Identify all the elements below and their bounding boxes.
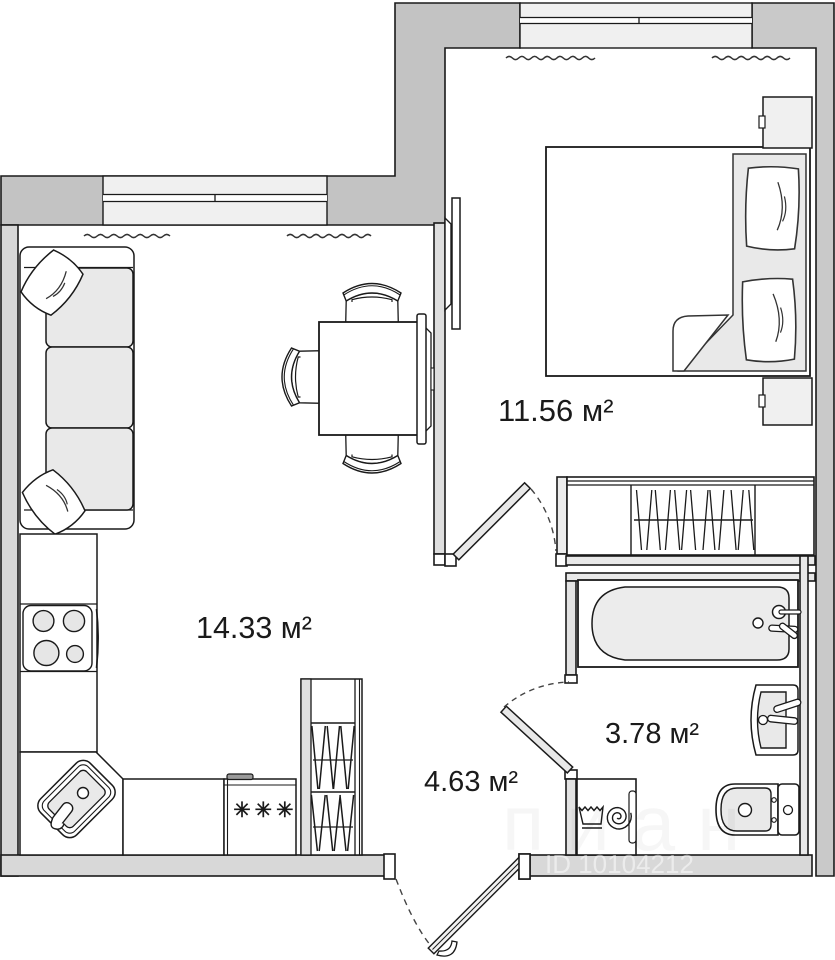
svg-text:11.56 м²: 11.56 м² — [498, 393, 614, 428]
svg-text:3.78 м²: 3.78 м² — [605, 718, 699, 750]
svg-text:14.33 м²: 14.33 м² — [196, 611, 312, 645]
svg-text:ID 10104212: ID 10104212 — [545, 849, 694, 879]
